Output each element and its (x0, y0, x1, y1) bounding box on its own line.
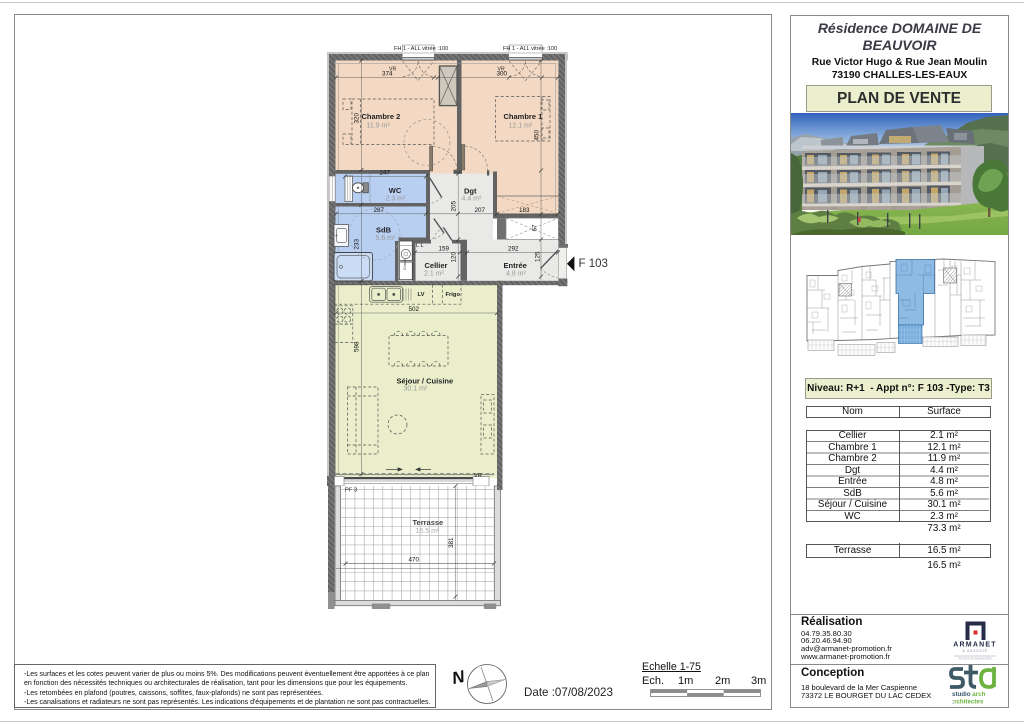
svg-text:Chambre 1: Chambre 1 (504, 112, 543, 121)
svg-text:2.1 m²: 2.1 m² (424, 271, 445, 278)
svg-text:30.1 m²: 30.1 m² (404, 386, 428, 393)
svg-text:F 103: F 103 (579, 258, 608, 270)
svg-text:207: 207 (475, 207, 486, 214)
svg-text:Frigo: Frigo (446, 292, 461, 298)
svg-text:WC: WC (389, 186, 402, 195)
svg-text:247: 247 (380, 170, 391, 177)
svg-text:Terrasse: Terrasse (413, 518, 444, 527)
svg-text:VR: VR (474, 473, 482, 479)
svg-text:233: 233 (354, 238, 361, 249)
svg-text:L L: L L (416, 243, 424, 249)
svg-text:ARMANET: ARMANET (953, 642, 996, 649)
svg-text:502: 502 (409, 306, 420, 313)
svg-text:320: 320 (354, 112, 361, 123)
svg-text:205: 205 (451, 200, 458, 211)
svg-text:183: 183 (519, 207, 530, 214)
svg-text:381: 381 (448, 537, 455, 548)
svg-text:16.5 m²: 16.5 m² (416, 528, 440, 535)
svg-text:FH 1 - ALL vitrée :100: FH 1 - ALL vitrée :100 (394, 46, 448, 52)
svg-text:Dgt: Dgt (464, 187, 477, 196)
svg-text:470: 470 (409, 557, 420, 564)
svg-text:FH 1 - ALL vitrée :100: FH 1 - ALL vitrée :100 (503, 46, 557, 52)
svg-text:292: 292 (508, 246, 519, 253)
svg-text:125: 125 (535, 251, 542, 262)
svg-text:studio arch: studio arch (952, 691, 986, 698)
svg-text:4.8 m²: 4.8 m² (506, 271, 527, 278)
svg-text:LV: LV (418, 292, 425, 298)
svg-text:5.6 m²: 5.6 m² (376, 235, 397, 242)
svg-text:450: 450 (534, 129, 541, 140)
svg-text:67: 67 (532, 224, 539, 232)
svg-text:SdB: SdB (376, 226, 392, 235)
svg-text:VR: VR (389, 67, 396, 73)
svg-text:2.3 m²: 2.3 m² (386, 196, 407, 203)
svg-text:159: 159 (439, 246, 450, 253)
svg-text:& ASSOCIÉ: & ASSOCIÉ (962, 648, 987, 653)
svg-text:11.9 m²: 11.9 m² (367, 123, 391, 130)
svg-text:VR: VR (498, 67, 505, 73)
svg-text:120: 120 (451, 251, 458, 262)
svg-text:Séjour / Cuisine: Séjour / Cuisine (397, 377, 454, 386)
svg-text:4.4 m²: 4.4 m² (462, 196, 483, 203)
svg-text:Chaud.: Chaud. (403, 258, 407, 270)
svg-text:598: 598 (354, 341, 361, 352)
svg-text:Entrée: Entrée (504, 261, 527, 270)
svg-text::rchitectes: :rchitectes (952, 699, 984, 706)
svg-text:Cellier: Cellier (425, 261, 448, 270)
svg-text:PF 3: PF 3 (345, 488, 357, 494)
svg-text:287: 287 (374, 207, 385, 214)
svg-text:Chambre 2: Chambre 2 (362, 112, 401, 121)
svg-text:12.1 m²: 12.1 m² (509, 123, 533, 130)
